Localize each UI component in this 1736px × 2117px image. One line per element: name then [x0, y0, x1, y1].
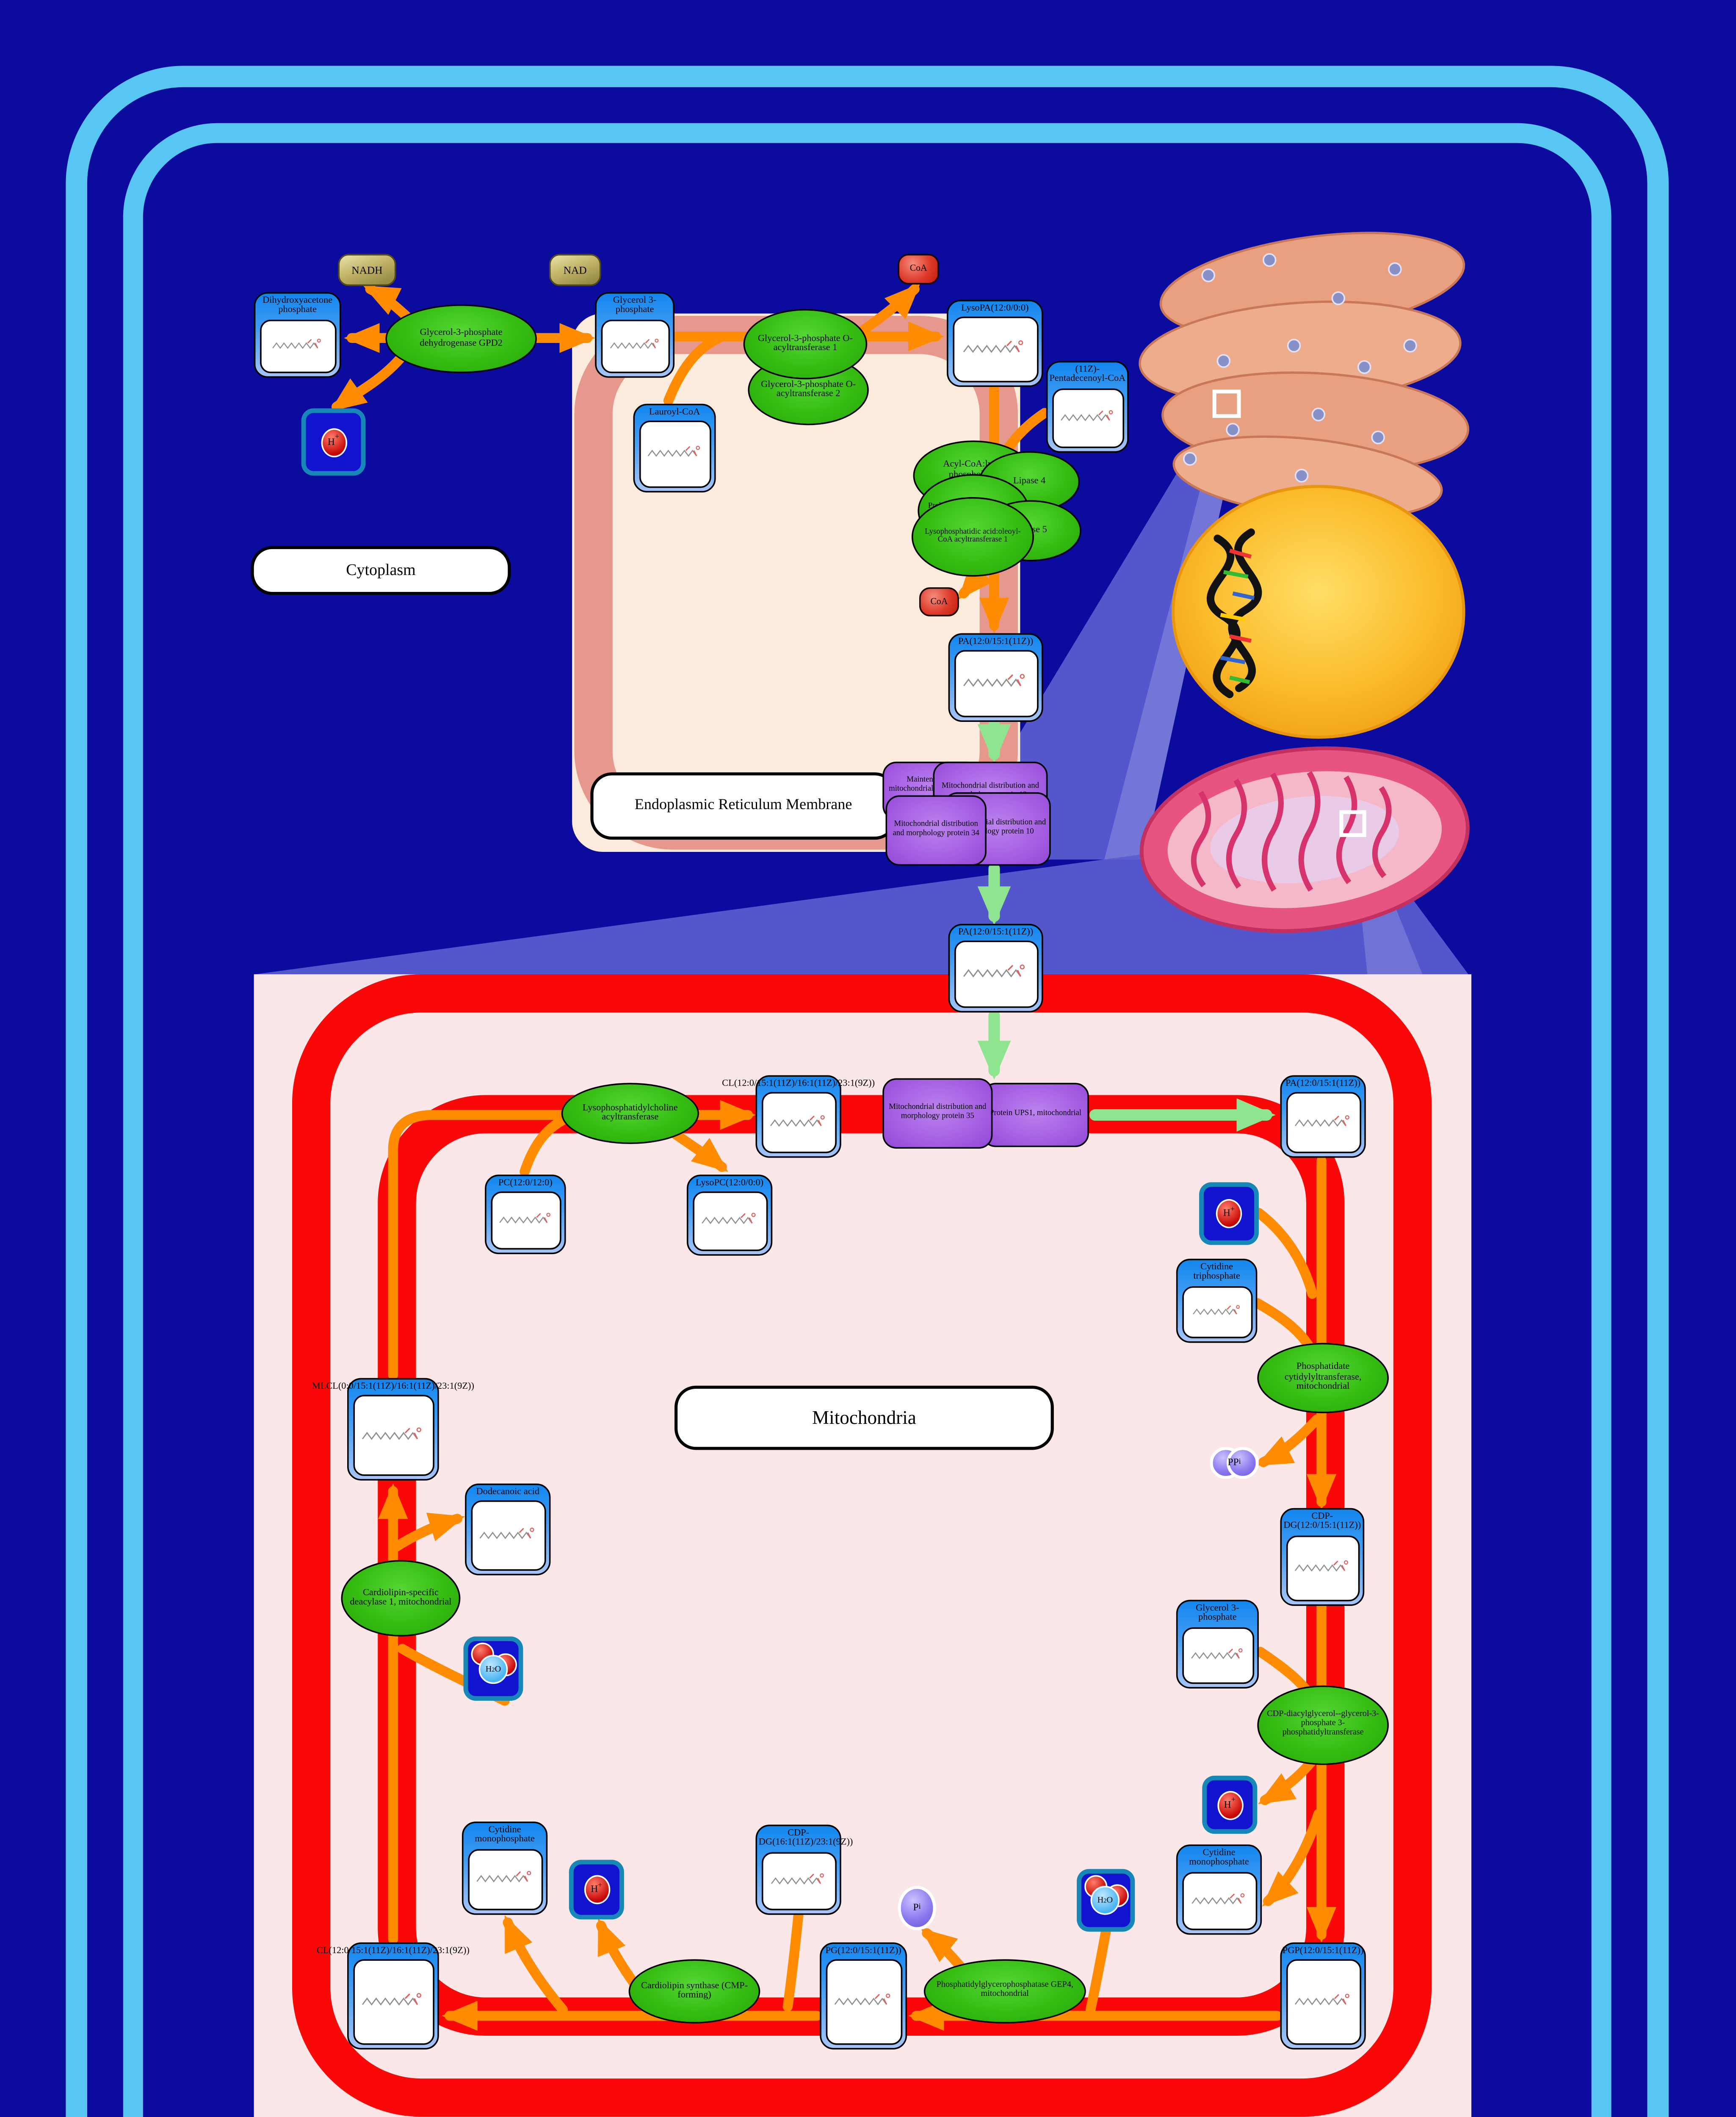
node-label: Glycerol 3-phosphate [1178, 1601, 1257, 1624]
badge-label: NADH [351, 264, 382, 276]
enzyme-label: Lipase 4 [1013, 477, 1045, 486]
node-mlcl[interactable]: MLCL(0:0/15:1(11Z)/16:1(11Z)/23:1(9Z)) [347, 1378, 439, 1481]
protein-mdm34[interactable]: Mitochondrial distribution and morpholog… [886, 795, 987, 865]
enzyme-label: Lysophosphatidylcholine acyltransferase [569, 1103, 691, 1123]
node-label: MLCL(0:0/15:1(11Z)/16:1(11Z)/23:1(9Z)) [310, 1379, 475, 1392]
node-label: LysoPA(12:0/0:0) [959, 301, 1030, 314]
badge-label: CoA [910, 265, 927, 274]
node-label: Glycerol 3-phosphate [597, 294, 673, 317]
structure-image [353, 1959, 434, 2044]
structure-image [1051, 388, 1123, 448]
enzyme-label: Cardiolipin-specific deacylase 1, mitoch… [349, 1588, 453, 1608]
node-label: Dihydroxyacetone phosphate [255, 294, 340, 317]
enzyme-lpaat1[interactable]: Lysophosphatidic acid:oleoyl-CoA acyltra… [912, 497, 1034, 577]
node-label: CDP-DG(12:0/15:1(11Z)) [1282, 1509, 1363, 1532]
node-cl-top[interactable]: CL(12:0/15:1(11Z)/16:1(11Z)/23:1(9Z)) [755, 1075, 841, 1158]
structure-image [952, 317, 1038, 381]
compartment-label-cytoplasm: Cytoplasm [251, 546, 511, 595]
nucleus-illustration [1173, 486, 1464, 737]
badge-pi[interactable]: Pi [898, 1886, 936, 1930]
enzyme-phosphatidate-cytidylyltransferase[interactable]: Phosphatidate cytidylyltransferase, mito… [1257, 1343, 1389, 1413]
compartment-label-er-membrane: Endoplasmic Reticulum Membrane [590, 772, 896, 840]
node-pg[interactable]: PG(12:0/15:1(11Z)) [820, 1943, 907, 2050]
enzyme-label: Phosphatidate cytidylyltransferase, mito… [1265, 1363, 1381, 1393]
node-dihydroxyacetone-phosphate[interactable]: Dihydroxyacetone phosphate [254, 292, 341, 378]
node-glycerol-3-phosphate-er[interactable]: Glycerol 3-phosphate [595, 292, 674, 378]
structure-image [490, 1192, 561, 1249]
enzyme-label: CDP-diacylglycerol--glycerol-3-phosphate… [1265, 1712, 1381, 1738]
structure-image [954, 941, 1038, 1007]
node-label: CDP-DG(16:1(11Z)/23:1(9Z)) [757, 1826, 840, 1849]
badge-nad[interactable]: NAD [549, 254, 601, 286]
structure-image [1182, 1286, 1252, 1337]
node-ctp[interactable]: Cytidine triphosphate [1176, 1259, 1257, 1343]
node-lauroyl-coa[interactable]: Lauroyl-CoA [633, 404, 716, 493]
node-cl-bottom-left[interactable]: CL(12:0/15:1(11Z)/16:1(11Z)/23:1(9Z)) [347, 1943, 439, 2050]
structure-image [1285, 1535, 1359, 1600]
enzyme-label: Glycerol-3-phosphate O-acyltransferase 2 [755, 380, 861, 400]
badge-h-plus-bottom-left[interactable]: H+ [569, 1860, 624, 1920]
node-lysopa[interactable]: LysoPA(12:0/0:0) [947, 300, 1043, 387]
node-label: PA(12:0/15:1(11Z)) [956, 925, 1034, 938]
structure-image [825, 1959, 902, 2044]
enzyme-lpcat[interactable]: Lysophosphatidylcholine acyltransferase [561, 1083, 699, 1144]
structure-image [1182, 1627, 1254, 1683]
badge-h-plus-right-1[interactable]: H+ [1199, 1182, 1259, 1245]
badge-coa-top[interactable]: CoA [898, 254, 939, 285]
badge-coa-er[interactable]: CoA [919, 587, 959, 616]
enzyme-cardiolipin-deacylase[interactable]: Cardiolipin-specific deacylase 1, mitoch… [341, 1560, 461, 1637]
node-label: PA(12:0/15:1(11Z)) [1284, 1077, 1362, 1089]
node-cmp-left[interactable]: Cytidine monophosphate [462, 1821, 547, 1915]
node-pa-er[interactable]: PA(12:0/15:1(11Z)) [948, 633, 1043, 722]
node-pc[interactable]: PC(12:0/12:0) [485, 1175, 566, 1254]
enzyme-gep4[interactable]: Phosphatidylglycerophosphatase GEP4, mit… [924, 1959, 1086, 2023]
node-label: PC(12:0/12:0) [497, 1176, 554, 1189]
node-pentadecenoyl-coa[interactable]: (11Z)-Pentadecenoyl-CoA [1046, 361, 1129, 453]
structure-image [1285, 1959, 1360, 2044]
node-cdp-dg-right[interactable]: CDP-DG(12:0/15:1(11Z)) [1280, 1508, 1364, 1606]
node-pa-oms[interactable]: PA(12:0/15:1(11Z)) [948, 924, 1043, 1013]
node-cmp-right[interactable]: Cytidine monophosphate [1176, 1844, 1262, 1935]
node-glycerol-3-phosphate-mito[interactable]: Glycerol 3-phosphate [1176, 1600, 1259, 1689]
node-label: (11Z)-Pentadecenoyl-CoA [1048, 362, 1127, 385]
badge-label: CoA [930, 597, 948, 607]
node-pa-inner-membrane[interactable]: PA(12:0/15:1(11Z)) [1280, 1075, 1366, 1158]
badge-h-plus-right-2[interactable]: H+ [1202, 1776, 1257, 1834]
er-illustration [1136, 216, 1471, 529]
structure-image [259, 320, 336, 373]
node-label: Dodecanoic acid [467, 1485, 549, 1498]
structure-image [600, 320, 669, 373]
badge-h-plus-er[interactable]: H+ [301, 408, 366, 475]
protein-mdm35[interactable]: Mitochondrial distribution and morpholog… [882, 1078, 992, 1149]
protein-ups1[interactable]: Protein UPS1, mitochondrial [982, 1083, 1089, 1147]
structure-image [692, 1192, 767, 1250]
pathway-diagram: Cytoplasm Endoplasmic Reticulum Membrane… [0, 0, 1736, 2117]
node-cdp-dg-left[interactable]: CDP-DG(16:1(11Z)/23:1(9Z)) [755, 1824, 841, 1915]
protein-label: Mitochondrial distribution and morpholog… [887, 1105, 988, 1122]
node-dodecanoic-acid[interactable]: Dodecanoic acid [465, 1484, 550, 1575]
structure-image [470, 1501, 545, 1570]
node-label: Cytidine monophosphate [1178, 1846, 1260, 1869]
node-label: Cytidine monophosphate [464, 1823, 546, 1846]
enzyme-label: Phosphatidylglycerophosphatase GEP4, mit… [932, 1982, 1078, 2000]
badge-h2o-bottom[interactable]: H2O [1077, 1869, 1135, 1932]
structure-image [1285, 1092, 1360, 1152]
badge-nadh[interactable]: NADH [338, 254, 396, 286]
enzyme-cardiolipin-synthase[interactable]: Cardiolipin synthase (CMP-forming) [629, 1959, 760, 2023]
structure-image [467, 1849, 542, 1910]
structure-image [353, 1395, 434, 1475]
enzyme-label: Glycerol-3-phosphate O-acyltransferase 1 [751, 334, 860, 354]
badge-label: NAD [564, 264, 587, 276]
compartment-label-mitochondria: Mitochondria [674, 1386, 1054, 1450]
enzyme-label: Lysophosphatidic acid:oleoyl-CoA acyltra… [919, 528, 1026, 545]
node-label: PG(12:0/15:1(11Z)) [824, 1944, 903, 1957]
structure-image [1182, 1872, 1257, 1929]
protein-label: Protein UPS1, mitochondrial [990, 1111, 1081, 1119]
structure-image [761, 1852, 836, 1910]
badge-ppi[interactable]: PPi [1210, 1447, 1259, 1479]
structure-image [954, 650, 1038, 716]
node-label: PGP(12:0/15:1(11Z)) [1281, 1944, 1365, 1957]
badge-h2o-left[interactable]: H2O [464, 1636, 523, 1701]
node-label: Cytidine triphosphate [1178, 1260, 1255, 1283]
enzyme-pgp-synthase[interactable]: CDP-diacylglycerol--glycerol-3-phosphate… [1257, 1686, 1389, 1765]
enzyme-gpd2[interactable]: Glycerol-3-phosphate dehydrogenase GPD2 [385, 304, 537, 373]
node-lysopc[interactable]: LysoPC(12:0/0:0) [687, 1175, 772, 1255]
node-label: Lauroyl-CoA [635, 405, 714, 418]
enzyme-label: Glycerol-3-phosphate dehydrogenase GPD2 [393, 329, 529, 349]
node-label: LysoPC(12:0/0:0) [694, 1176, 765, 1189]
node-pgp[interactable]: PGP(12:0/15:1(11Z)) [1280, 1943, 1366, 2050]
node-label: CL(12:0/15:1(11Z)/16:1(11Z)/23:1(9Z)) [315, 1944, 471, 1957]
protein-label: Mitochondrial distribution and morpholog… [890, 822, 982, 839]
enzyme-label: Cardiolipin synthase (CMP-forming) [636, 1982, 753, 2001]
structure-image [761, 1092, 836, 1152]
node-label: PA(12:0/15:1(11Z)) [956, 635, 1034, 647]
enzyme-gpat1[interactable]: Glycerol-3-phosphate O-acyltransferase 1 [744, 309, 868, 379]
structure-image [639, 421, 710, 487]
node-label: CL(12:0/15:1(11Z)/16:1(11Z)/23:1(9Z)) [721, 1077, 876, 1089]
